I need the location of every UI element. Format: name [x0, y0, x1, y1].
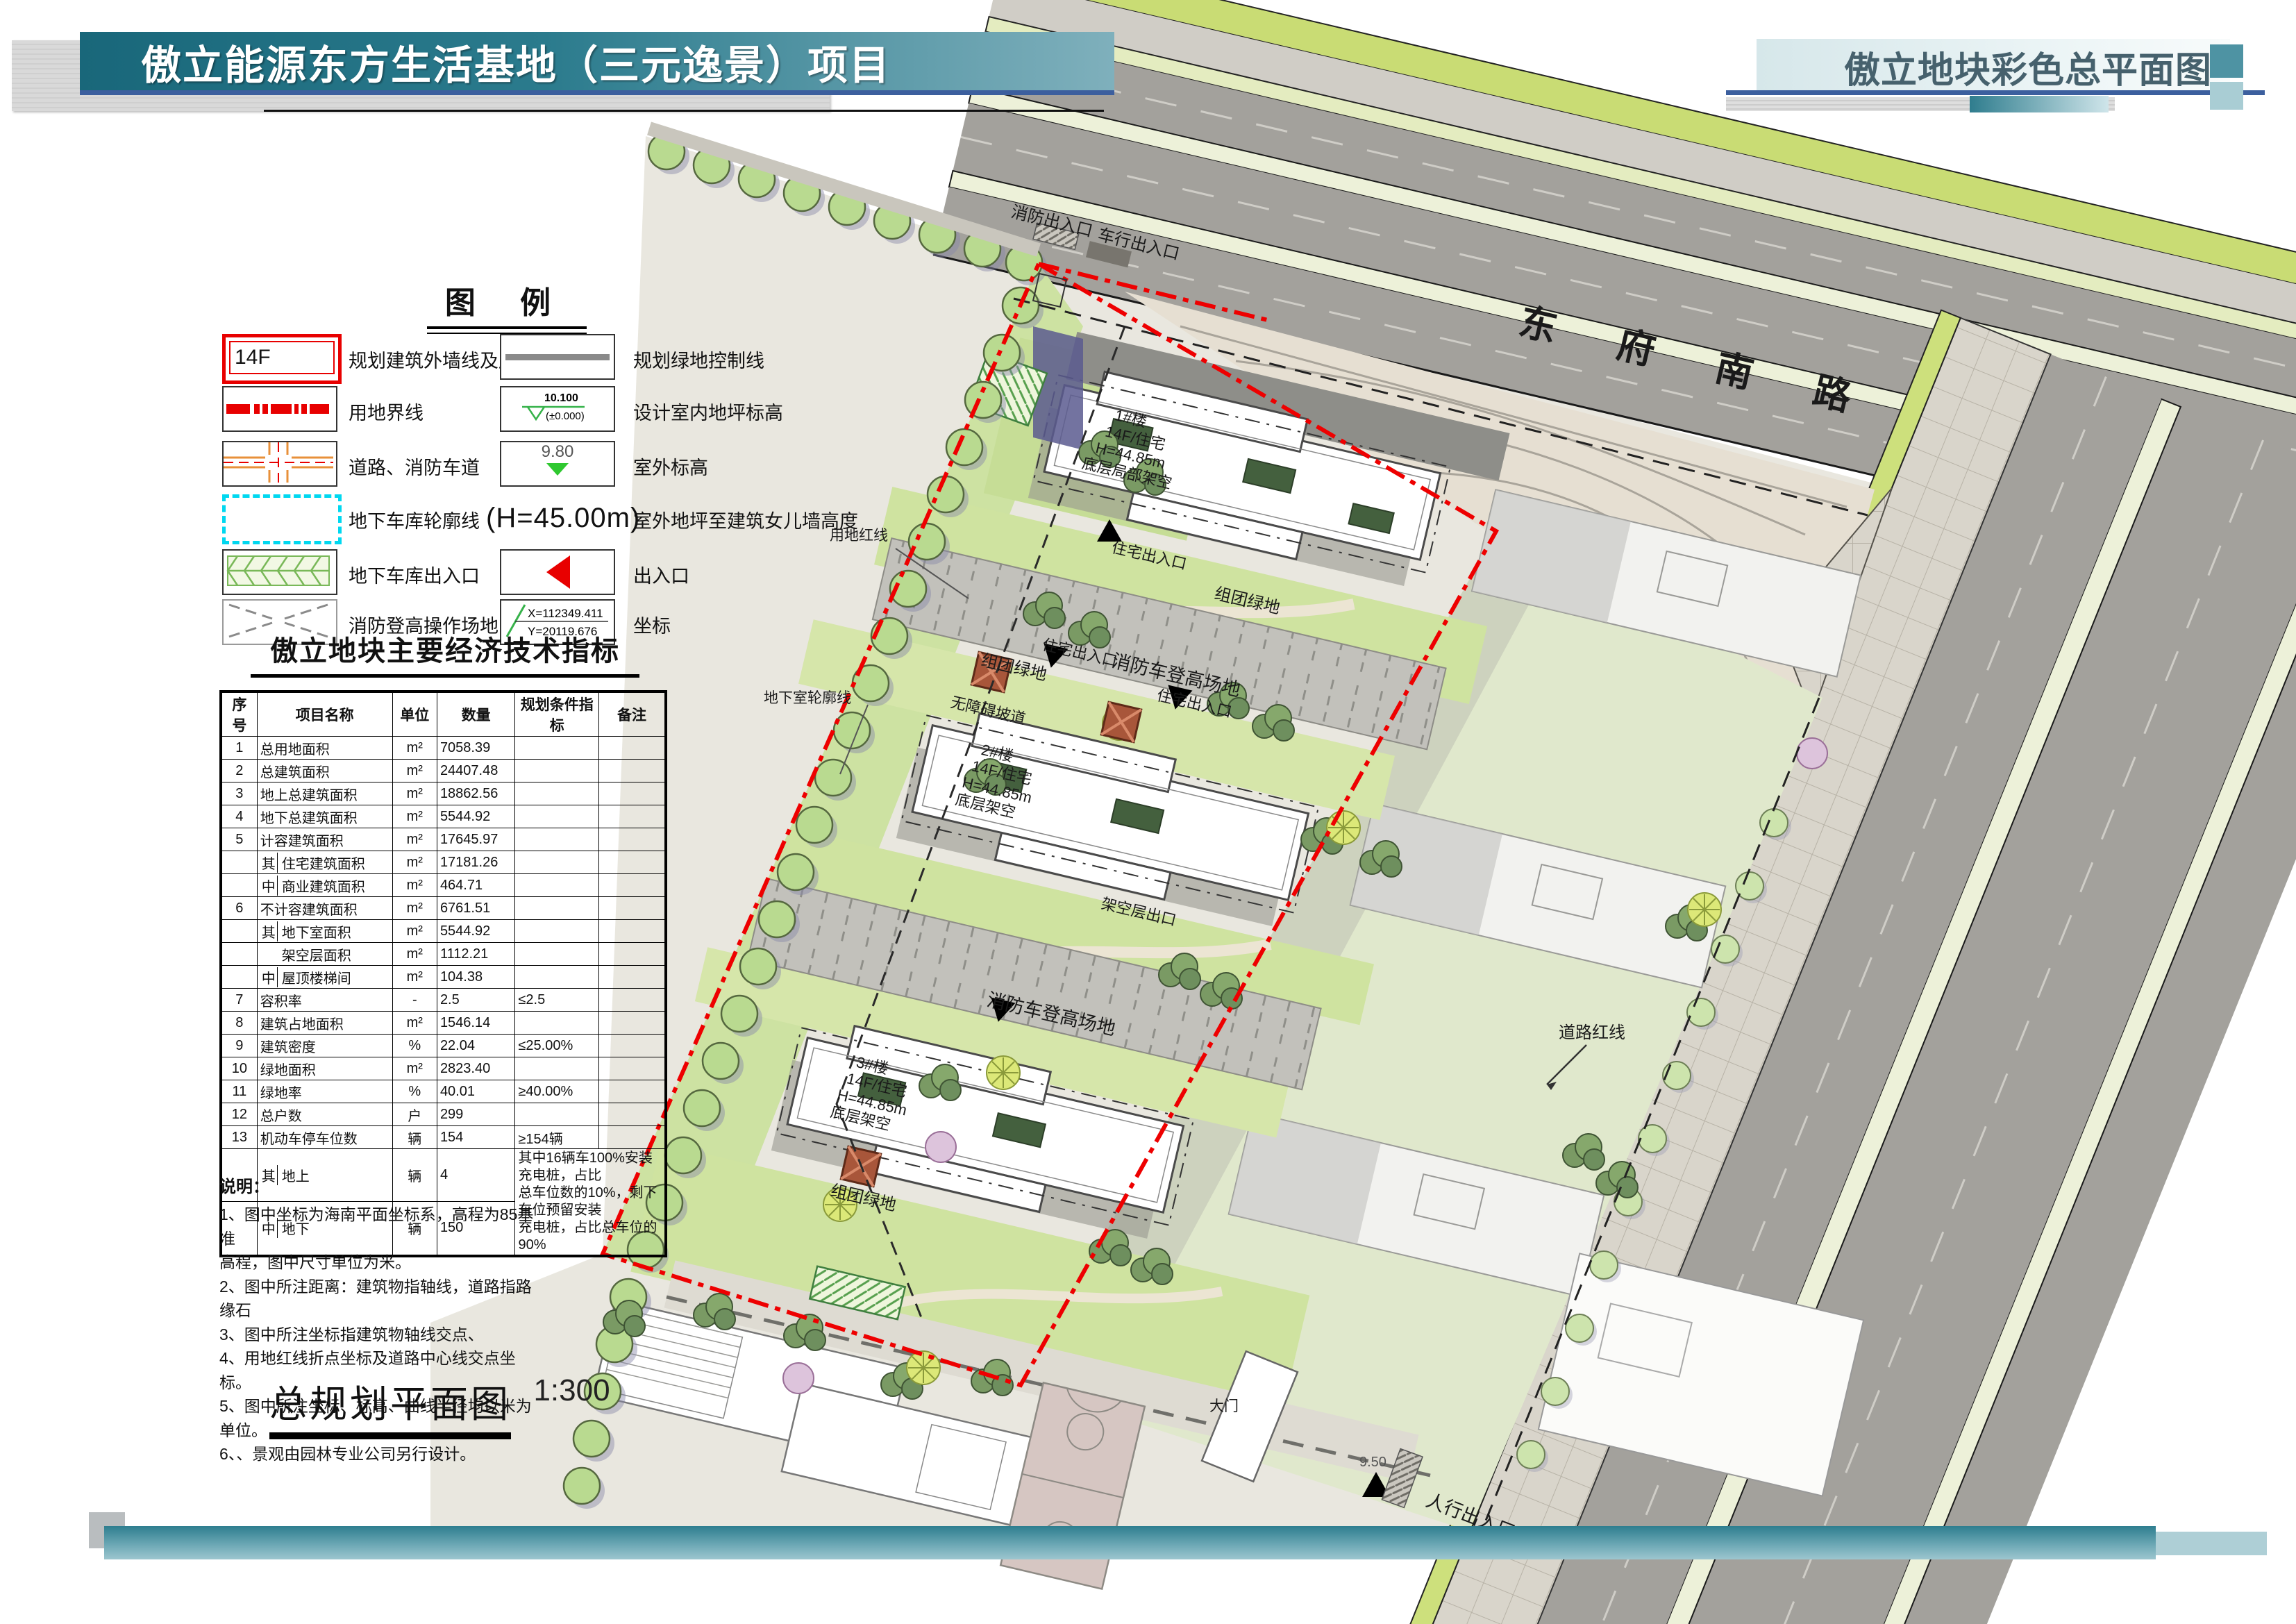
notes-title: 说明： [219, 1175, 546, 1200]
economic-indicator-panel: 傲立地块主要经济技术指标 序号项目名称 单位数量 规划条件指标备注 1总用地面积… [219, 628, 671, 1257]
table-row: 11绿地率%40.01≥40.00% [221, 1080, 666, 1103]
table-row: 其住宅建筑面积m²17181.26 [221, 851, 666, 874]
table-row: 架空层面积m²1112.21 [221, 943, 666, 966]
legend-symbol-garage-entrance [222, 549, 337, 595]
table-row: 12总户数户299 [221, 1103, 666, 1126]
note-item: 6、、景观由园林专业公司另行设计。 [219, 1442, 546, 1466]
table-row: 9建筑密度%22.04≤25.00% [221, 1035, 666, 1057]
table-row: 7容积率-2.5≤2.5 [221, 989, 666, 1012]
sheet-title: 傲立地块彩色总平面图 [1844, 41, 2230, 93]
table-row: 13机动车停车位数辆154≥154辆 [221, 1126, 666, 1149]
header-title-bar: 傲立能源东方生活基地（三元逸景）项目 [80, 32, 1114, 92]
legend-symbol-green-control [500, 334, 615, 380]
legend-symbol-building-outline: 14F [222, 334, 342, 384]
table-row: 6不计容建筑面积m²6761.51 [221, 897, 666, 920]
table-row: 3地上总建筑面积m²18862.56 [221, 782, 666, 805]
footer-teal-bar [104, 1526, 2156, 1559]
table-row: 中屋顶楼梯间m²104.38 [221, 966, 666, 989]
header-accent-line [80, 90, 1114, 95]
svg-text:大门: 大门 [1209, 1398, 1239, 1414]
footer-teal-bar-light [2156, 1532, 2267, 1555]
header-right-panel: 傲立地块彩色总平面图 [1757, 39, 2230, 94]
svg-text:道路红线: 道路红线 [1559, 1023, 1625, 1042]
legend-symbol-road [222, 441, 337, 487]
legend-symbol-outdoor-elevation: 9.80 [500, 441, 615, 487]
svg-text:X=112349.411: X=112349.411 [528, 607, 603, 620]
svg-text:10.100: 10.100 [544, 392, 578, 404]
legend-symbol-parapet-height: (H=45.00m) [486, 503, 640, 534]
plan-title: 总规划平面图 1:300 [269, 1373, 610, 1439]
corner-square-teal [2210, 44, 2243, 78]
table-title: 傲立地块主要经济技术指标 [219, 628, 671, 679]
page-title: 傲立能源东方生活基地（三元逸景）项目 [80, 33, 891, 91]
table-row: 其地下室面积m²5544.92 [221, 920, 666, 943]
drawing-sheet: 东 府 南 路 消防出入口 车行出入口 1#楼 14F/住宅 H=44.85m … [0, 0, 2296, 1624]
table-row: 10绿地面积m²2823.40 [221, 1057, 666, 1080]
note-item: 2、图中所注距离：建筑物指轴线，道路指路缘石 [219, 1275, 546, 1323]
table-row: 中商业建筑面积m²464.71 [221, 874, 666, 897]
header-black-line [264, 110, 1104, 112]
plan-scale: 1:300 [533, 1373, 610, 1407]
table-row: 1总用地面积m²7058.39 [221, 737, 666, 760]
economic-indicator-table: 序号项目名称 单位数量 规划条件指标备注 1总用地面积m²7058.39 2总建… [219, 690, 667, 1257]
table-row: 2总建筑面积m²24407.48 [221, 760, 666, 782]
header-accent-line-right [1726, 90, 2265, 95]
legend-symbol-site-boundary [222, 386, 337, 432]
note-item: 1、图中坐标为海南平面坐标系，高程为85基准 高程，图中尺寸单位为米。 [219, 1203, 546, 1275]
corner-square-light [2210, 82, 2243, 110]
legend-title: 图 例 [417, 278, 597, 334]
legend-symbol-entrance [500, 549, 615, 595]
table-row: 5计容建筑面积m²17645.97 [221, 828, 666, 851]
legend-symbol-garage-outline [222, 494, 342, 544]
note-item: 3、图中所注坐标指建筑物轴线交点、 [219, 1323, 546, 1347]
svg-text:地下室轮廓线: 地下室轮廓线 [764, 690, 851, 706]
legend-symbol-indoor-elevation: 10.100 (±0.000) [500, 386, 615, 432]
table-row: 8建筑占地面积m²1546.14 [221, 1012, 666, 1035]
table-row: 4地下总建筑面积m²5544.92 [221, 805, 666, 828]
svg-text:9.50: 9.50 [1359, 1455, 1386, 1470]
header-right-teal-band [1970, 96, 2109, 112]
pavilion-icon [1101, 702, 1141, 742]
table-header-row: 序号项目名称 单位数量 规划条件指标备注 [221, 692, 666, 737]
svg-text:(±0.000): (±0.000) [546, 410, 585, 422]
legend-title-underline [427, 326, 587, 334]
